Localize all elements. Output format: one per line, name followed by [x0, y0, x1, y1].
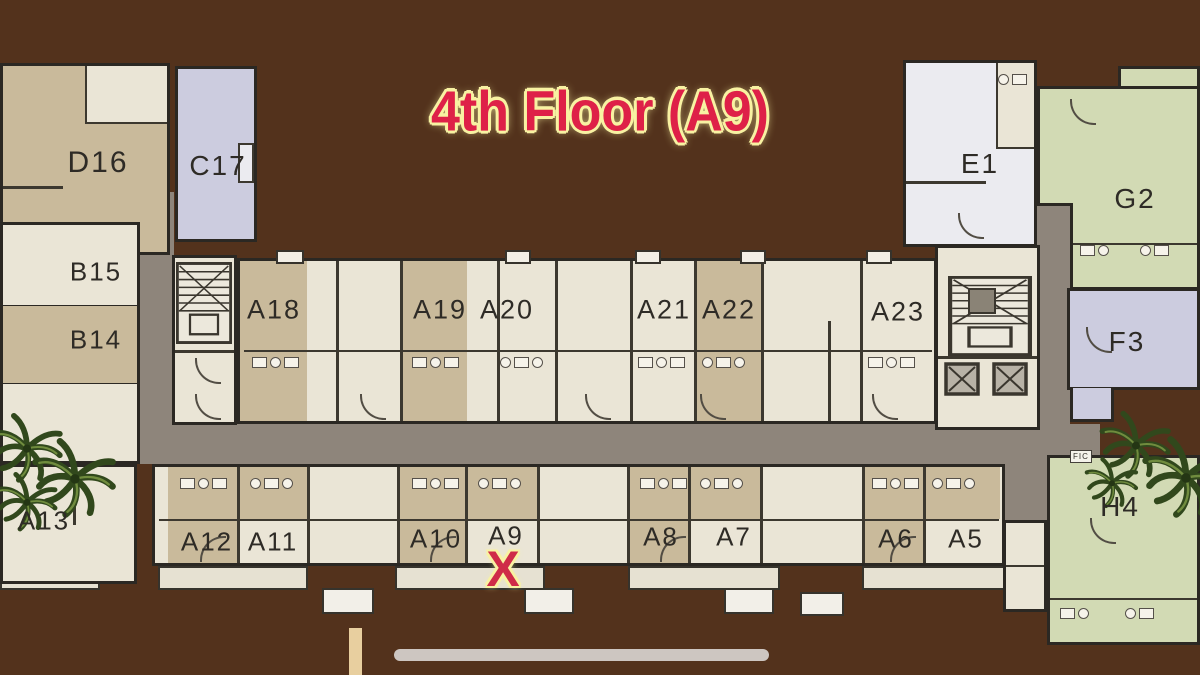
unit-label-a22: A22 [702, 295, 756, 326]
interior-wall [828, 321, 831, 421]
unit-label-h4: H4 [1100, 491, 1140, 523]
bathroom-zone-wall [244, 350, 932, 352]
interior-wall [465, 467, 468, 563]
interior-wall [906, 181, 986, 184]
unit-label-a18: A18 [247, 295, 301, 326]
balcony-box [322, 588, 374, 614]
interior-wall [1050, 598, 1197, 600]
door-arc [195, 358, 221, 384]
a11-bath-zone [237, 467, 307, 519]
balcony-strip [158, 566, 308, 590]
fire-cabinet-label: FIC [1070, 450, 1092, 463]
bathroom-fixtures [412, 478, 459, 489]
bathroom-fixtures [872, 478, 919, 489]
door-arc [1070, 99, 1096, 125]
interior-wall [860, 261, 863, 421]
unit-label-a10: A10 [410, 524, 462, 555]
interior-wall [497, 261, 500, 421]
unit-label-f3: F3 [1109, 326, 1146, 358]
a19-area [403, 261, 467, 421]
bathroom-fixtures [478, 478, 521, 489]
a7-bath-zone [688, 467, 760, 519]
interior-wall [307, 467, 310, 563]
a9-bath-zone [465, 467, 537, 519]
unit-label-a6: A6 [878, 524, 914, 555]
interior-wall [630, 261, 633, 421]
unit-label-a20: A20 [480, 295, 534, 326]
interior-wall [555, 261, 558, 421]
floor-plan-canvas: FIC D16 C17 B15 B14 A13 A18 A19 A20 A21 … [0, 0, 1200, 675]
elevator-icon [944, 362, 980, 396]
unit-label-c17: C17 [189, 150, 246, 182]
bathroom-fixtures [700, 478, 743, 489]
bathroom-fixtures [252, 357, 299, 368]
interior-wall [862, 467, 865, 563]
bathroom-fixtures [868, 357, 915, 368]
unit-label-e1: E1 [961, 148, 999, 180]
interior-wall [397, 467, 400, 563]
unit-label-b14: B14 [70, 325, 122, 356]
a18-area [240, 261, 307, 421]
corridor-right-vertical [1037, 206, 1070, 424]
home-indicator[interactable] [394, 649, 769, 661]
interior-wall [938, 356, 1037, 359]
balcony-box [800, 592, 844, 616]
balcony-strip [862, 566, 1005, 590]
palm-trunk [349, 628, 362, 675]
right-service-rooms [1003, 520, 1047, 612]
balcony-vent-box [635, 250, 661, 264]
d16-bathroom [85, 66, 167, 124]
bathroom-fixtures [638, 357, 685, 368]
interior-wall [175, 350, 234, 353]
stair-shaft [968, 288, 996, 314]
balcony-vent-box [276, 250, 304, 264]
door-arc [195, 394, 221, 420]
corridor-right-plaza [1002, 460, 1047, 520]
balcony-strip [395, 566, 545, 590]
floor-title: 4th Floor (A9) [431, 80, 769, 145]
bathroom-fixtures [702, 357, 745, 368]
bathroom-fixtures [1140, 245, 1169, 256]
interior-wall [1006, 565, 1044, 567]
interior-wall [760, 467, 763, 563]
interior-wall [336, 261, 339, 421]
corridor-main [95, 424, 1100, 464]
balcony-box [724, 588, 774, 614]
interior-wall [627, 467, 630, 563]
balcony-strip [628, 566, 780, 590]
bathroom-fixtures [1080, 245, 1109, 256]
unit-label-b15: B15 [70, 257, 122, 288]
unit-label-d16: D16 [67, 146, 128, 180]
palm-tree-icon [1138, 428, 1200, 524]
unit-label-g2: G2 [1114, 183, 1155, 215]
elevator-icon [992, 362, 1028, 396]
unit-label-a13: A13 [18, 506, 70, 537]
bathroom-fixtures [1125, 608, 1154, 619]
bathroom-fixtures [500, 357, 543, 368]
bathroom-fixtures [412, 357, 459, 368]
bathroom-fixtures [1060, 608, 1089, 619]
bathroom-fixtures [932, 478, 975, 489]
interior-wall [761, 261, 764, 421]
interior-wall [923, 467, 926, 563]
interior-wall [400, 261, 403, 421]
unit-a9-x-marker: X [486, 540, 519, 598]
bathroom-fixtures [180, 478, 227, 489]
balcony-box [524, 588, 574, 614]
unit-label-a12: A12 [181, 527, 233, 558]
unit-label-a19: A19 [413, 295, 467, 326]
unit-label-a23: A23 [871, 297, 925, 328]
bathroom-zone-wall [159, 519, 999, 521]
balcony-vent-box [505, 250, 531, 264]
unit-label-a5: A5 [948, 524, 984, 555]
interior-wall [537, 467, 540, 563]
unit-label-a7: A7 [716, 522, 752, 553]
bathroom-fixtures [640, 478, 687, 489]
interior-wall [694, 261, 697, 421]
bathroom-fixtures [250, 478, 293, 489]
interior-wall [688, 467, 691, 563]
unit-label-a11: A11 [248, 527, 298, 558]
unit-label-a8: A8 [643, 522, 679, 553]
balcony-vent-box [866, 250, 892, 264]
stairs-icon [176, 262, 232, 344]
bathroom-fixtures [998, 74, 1027, 85]
interior-wall [3, 186, 63, 189]
a5-bath-zone [923, 467, 1000, 519]
door-arc [958, 213, 984, 239]
unit-label-a21: A21 [637, 295, 691, 326]
balcony-vent-box [740, 250, 766, 264]
interior-wall [237, 467, 240, 563]
